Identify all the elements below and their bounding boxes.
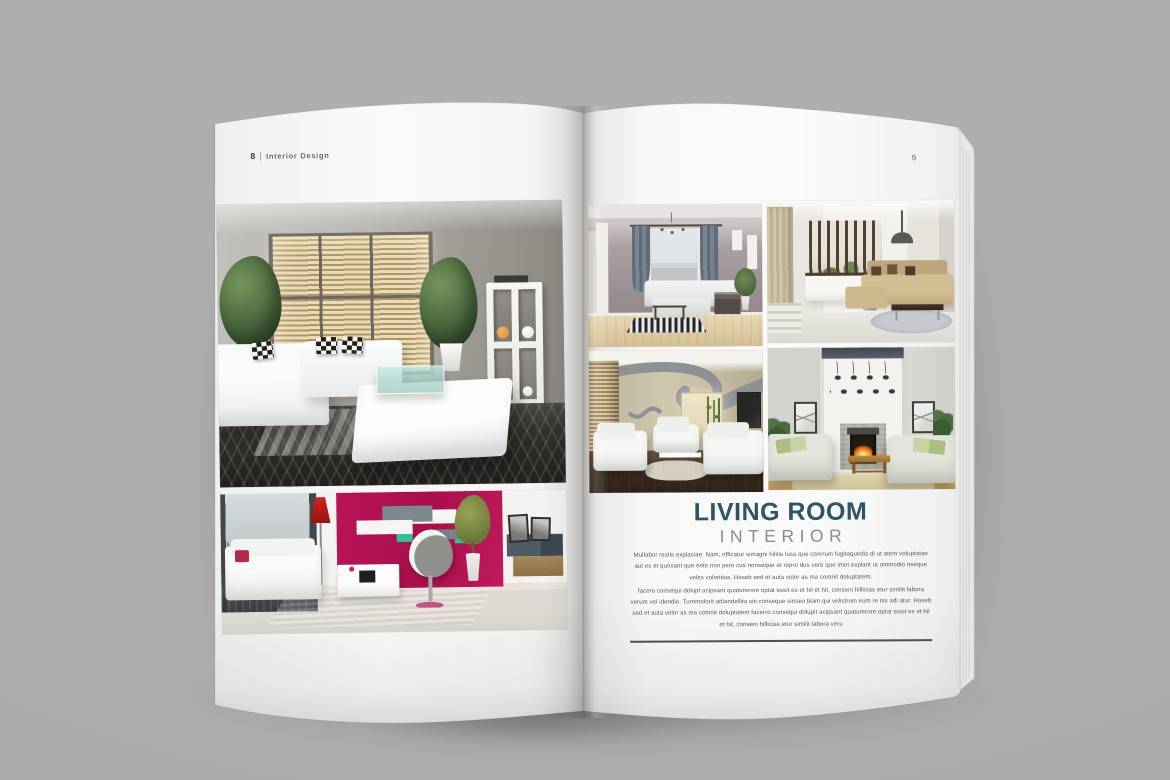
article-divider (630, 639, 932, 643)
article-paragraph-2: facero consequi dolupt acipsant quaturer… (630, 585, 932, 632)
photo-fireplace-living-room (768, 347, 956, 490)
photo-curved-ceiling-lounge (589, 350, 764, 493)
pillow (251, 341, 274, 360)
chandelier (654, 212, 690, 238)
page-number-right: 9 (912, 153, 917, 162)
wavy-shelf (629, 409, 661, 417)
pillow (316, 337, 337, 354)
potted-plant (734, 268, 756, 310)
wood-coffee-table (848, 455, 890, 477)
small-tree (452, 495, 493, 584)
white-sofa (225, 545, 322, 600)
glass-table (659, 452, 701, 475)
pillow (341, 336, 363, 354)
article-paragraph-1: Mullabor restis explaciae. Nam, officatu… (630, 549, 932, 584)
artwork-frame-left (794, 402, 817, 434)
coffee-table (891, 304, 943, 322)
white-sofa (703, 430, 763, 474)
page-header: 8 | Interior Design (250, 150, 329, 161)
left-page-content: 8 | Interior Design (210, 109, 587, 716)
shelf-cubby (518, 289, 536, 341)
photo-slat-partition-room (767, 200, 955, 343)
header-separator: | (259, 151, 262, 161)
pillows (871, 264, 931, 276)
ceiling-recess (822, 347, 904, 358)
section-title: Interior Design (266, 151, 330, 161)
article: LIVING ROOM INTERIOR Mullabor restis exp… (629, 499, 932, 643)
photo-living-room-blinds (216, 200, 566, 488)
white-sofa (653, 424, 699, 452)
article-title: LIVING ROOM (629, 499, 931, 525)
stairs (767, 303, 801, 333)
photo-classic-living-room (588, 204, 763, 347)
page-number-left: 8 (250, 151, 255, 161)
shelf-cubby (519, 348, 537, 400)
glass-coffee-table (376, 365, 444, 394)
swivel-egg-chair (405, 529, 456, 608)
display-unit (588, 223, 625, 327)
sofa-right (887, 435, 955, 483)
potted-plant-right (419, 257, 479, 372)
pendant-lamp (885, 210, 919, 252)
sofa-left (768, 434, 832, 480)
coffee-table (337, 564, 399, 597)
side-table (652, 305, 686, 319)
artwork-frame-right (912, 401, 935, 433)
backdrop: 8 | Interior Design (0, 0, 1170, 780)
striped-rug (626, 317, 706, 332)
picture-frames (508, 512, 554, 541)
sofa-body (861, 274, 953, 304)
right-page-content: 9 (581, 111, 963, 715)
article-subtitle: INTERIOR (630, 526, 932, 546)
white-sofa (593, 431, 647, 471)
photo-magenta-living-room (220, 490, 568, 635)
pendant-cluster (830, 361, 896, 395)
shelf-cubby (493, 289, 511, 341)
